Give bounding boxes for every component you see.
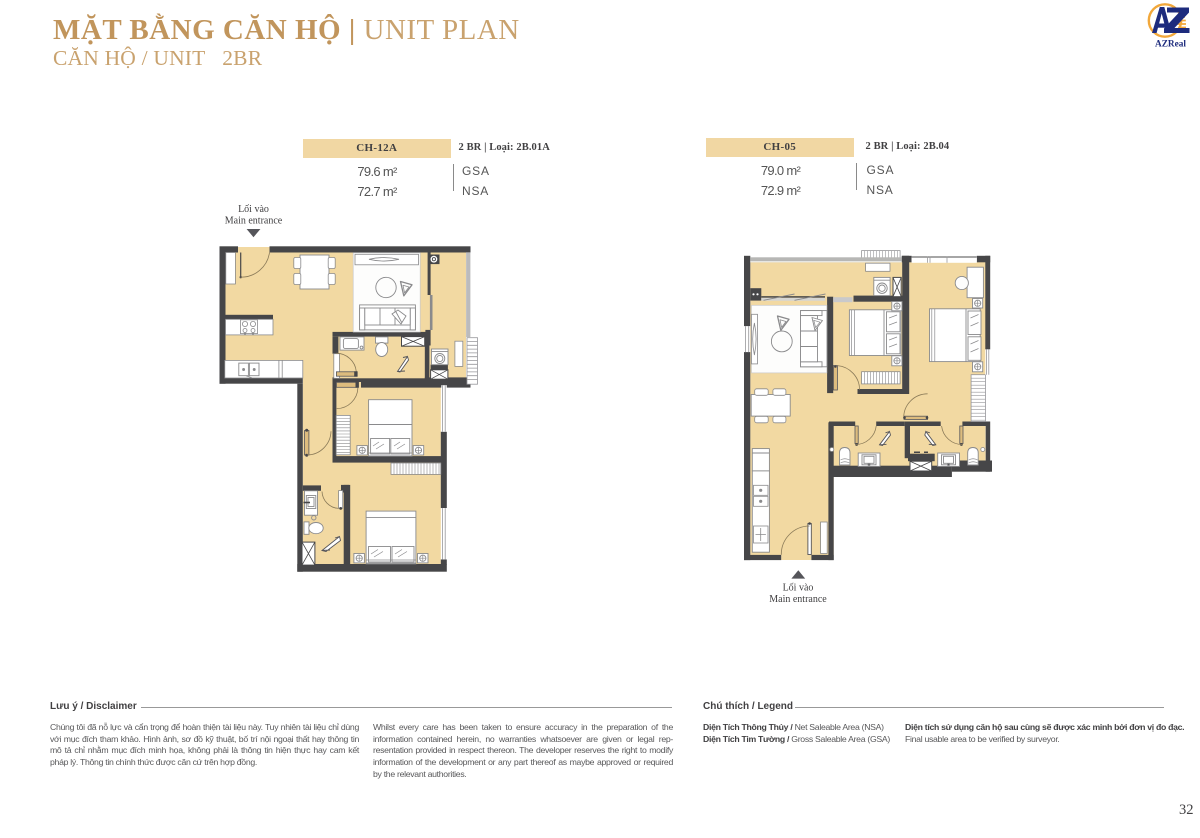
- svg-text:Lối vào: Lối vào: [783, 583, 814, 594]
- svg-text:Main entrance: Main entrance: [769, 594, 827, 605]
- svg-text:Main entrance: Main entrance: [225, 216, 283, 227]
- svg-text:AZReal: AZReal: [1155, 40, 1186, 50]
- svg-text:Lối vào: Lối vào: [238, 204, 269, 215]
